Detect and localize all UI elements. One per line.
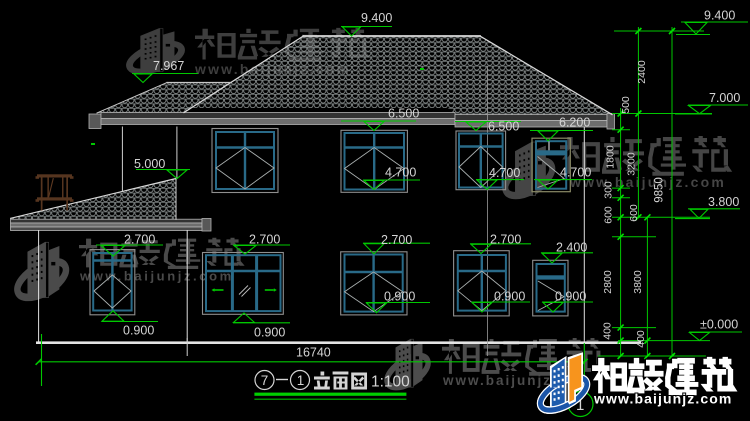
svg-text:600: 600: [628, 204, 640, 222]
svg-text:www.baijunjz.com: www.baijunjz.com: [569, 174, 726, 190]
svg-text:6.500: 6.500: [388, 107, 419, 121]
svg-text:2.700: 2.700: [381, 233, 412, 247]
svg-text:7.967: 7.967: [153, 59, 184, 73]
svg-text:0.900: 0.900: [555, 290, 586, 304]
svg-text:16740: 16740: [296, 346, 331, 360]
svg-text:7.000: 7.000: [709, 91, 740, 105]
svg-text:4.700: 4.700: [560, 166, 591, 180]
svg-text:1:100: 1:100: [371, 374, 410, 391]
svg-text:4.700: 4.700: [385, 166, 416, 180]
svg-text:0.900: 0.900: [494, 290, 525, 304]
svg-text:1: 1: [297, 373, 305, 388]
svg-text:3800: 3800: [632, 270, 644, 294]
svg-text:0.900: 0.900: [384, 290, 415, 304]
svg-text:5.000: 5.000: [134, 157, 165, 171]
svg-text:3200: 3200: [626, 152, 638, 176]
svg-text:400: 400: [602, 322, 614, 340]
svg-text:2.700: 2.700: [490, 233, 521, 247]
svg-text:2800: 2800: [602, 270, 614, 294]
svg-text:0.900: 0.900: [123, 324, 154, 338]
svg-text:9.400: 9.400: [704, 9, 735, 23]
svg-text:600: 600: [603, 206, 615, 224]
svg-text:300: 300: [603, 181, 615, 199]
svg-text:9.400: 9.400: [361, 11, 392, 25]
svg-text:7: 7: [261, 373, 269, 388]
svg-text:6.200: 6.200: [559, 116, 590, 130]
svg-text:400: 400: [635, 330, 647, 348]
svg-text:2.700: 2.700: [249, 233, 280, 247]
svg-text:1800: 1800: [605, 145, 617, 169]
svg-text:±0.000: ±0.000: [700, 318, 738, 332]
svg-text:3.800: 3.800: [708, 195, 739, 209]
svg-text:www.baijunjz.com: www.baijunjz.com: [593, 391, 732, 407]
svg-text:500: 500: [620, 96, 632, 114]
svg-text:2400: 2400: [636, 60, 648, 84]
svg-text:0.900: 0.900: [254, 326, 285, 340]
svg-text:4.700: 4.700: [489, 166, 520, 180]
svg-text:6.500: 6.500: [488, 120, 519, 134]
svg-text:2.700: 2.700: [124, 233, 155, 247]
svg-text:9850: 9850: [654, 177, 666, 203]
svg-text:2.400: 2.400: [556, 241, 587, 255]
